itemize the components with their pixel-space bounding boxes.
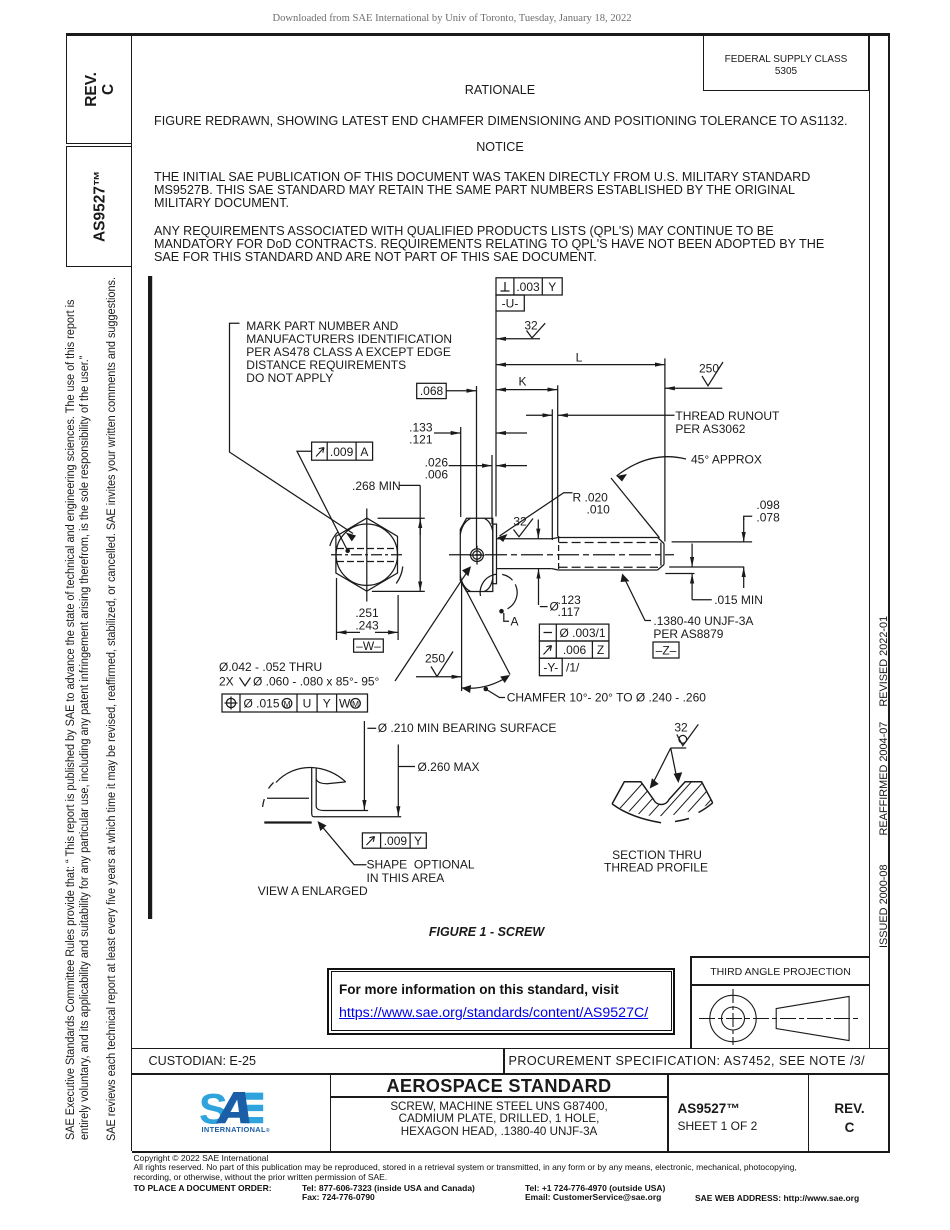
svg-text:IN THIS AREA: IN THIS AREA — [367, 871, 445, 885]
svg-text:Ø .003/1: Ø .003/1 — [559, 626, 605, 640]
svg-text:CHAMFER 10°- 20° TO Ø .240 - .: CHAMFER 10°- 20° TO Ø .240 - .260 — [507, 691, 707, 705]
svg-text:K: K — [518, 375, 526, 389]
svg-text:VIEW A ENLARGED: VIEW A ENLARGED — [258, 884, 368, 898]
svg-text:M: M — [352, 699, 359, 709]
svg-text:Y: Y — [414, 834, 422, 848]
svg-text:–W–: –W– — [356, 639, 381, 653]
svg-text:U: U — [303, 697, 312, 711]
svg-text:250: 250 — [425, 652, 445, 666]
svg-text:Y: Y — [548, 280, 556, 294]
svg-text:2X: 2X — [219, 675, 234, 689]
svg-text:PER AS8879: PER AS8879 — [653, 627, 723, 641]
svg-text:-U-: -U- — [502, 297, 519, 311]
svg-text:Ø .060 - .080 x 85°- 95°: Ø .060 - .080 x 85°- 95° — [253, 675, 380, 689]
svg-text:THREAD PROFILE: THREAD PROFILE — [604, 860, 708, 874]
svg-text:.1380-40 UNJF-3A: .1380-40 UNJF-3A — [653, 614, 753, 628]
svg-text:32: 32 — [524, 319, 538, 333]
svg-text:.015 MIN: .015 MIN — [714, 593, 763, 607]
svg-text:DISTANCE REQUIREMENTS: DISTANCE REQUIREMENTS — [246, 358, 406, 372]
svg-text:PER AS478 CLASS A EXCEPT EDGE: PER AS478 CLASS A EXCEPT EDGE — [246, 345, 451, 359]
svg-text:Ø .210 MIN BEARING SURFACE: Ø .210 MIN BEARING SURFACE — [378, 721, 557, 735]
svg-text:Ø .015: Ø .015 — [244, 697, 280, 711]
svg-text:Ø.042 - .052 THRU: Ø.042 - .052 THRU — [219, 660, 322, 674]
svg-text:.003: .003 — [516, 280, 540, 294]
svg-text:Ø.260 MAX: Ø.260 MAX — [418, 760, 480, 774]
svg-text:MANUFACTURERS IDENTIFICATION: MANUFACTURERS IDENTIFICATION — [246, 332, 452, 346]
svg-text:45° APPROX: 45° APPROX — [691, 452, 762, 466]
svg-text:.068: .068 — [420, 384, 444, 398]
svg-text:.009: .009 — [330, 445, 354, 459]
svg-text:.009: .009 — [384, 834, 408, 848]
svg-text:A: A — [511, 614, 519, 628]
svg-text:Y: Y — [323, 697, 331, 711]
svg-text:Z: Z — [597, 643, 604, 657]
svg-text:32: 32 — [674, 721, 688, 735]
svg-text:M: M — [283, 699, 290, 709]
svg-text:-Y-: -Y- — [543, 661, 558, 675]
svg-text:THREAD RUNOUT: THREAD RUNOUT — [675, 409, 780, 423]
svg-text:DO NOT APPLY: DO NOT APPLY — [246, 371, 333, 385]
svg-text:/1/: /1/ — [566, 661, 580, 675]
svg-text:–Z–: –Z– — [656, 644, 677, 658]
svg-text:L: L — [576, 351, 583, 365]
svg-text:.117: .117 — [558, 605, 581, 619]
svg-text:MARK PART NUMBER AND: MARK PART NUMBER AND — [246, 319, 398, 333]
svg-text:.006: .006 — [563, 643, 587, 657]
svg-text:SHAPE OPTIONAL: SHAPE OPTIONAL — [367, 858, 475, 872]
svg-text:.243: .243 — [355, 619, 379, 633]
svg-text:.006: .006 — [425, 468, 449, 482]
svg-text:.078: .078 — [756, 511, 780, 525]
svg-text:.121: .121 — [409, 433, 433, 447]
svg-text:.268 MIN: .268 MIN — [352, 479, 401, 493]
svg-text:W: W — [339, 697, 351, 711]
svg-text:A: A — [360, 445, 368, 459]
svg-text:PER AS3062: PER AS3062 — [675, 422, 745, 436]
svg-text:.010: .010 — [587, 503, 611, 517]
